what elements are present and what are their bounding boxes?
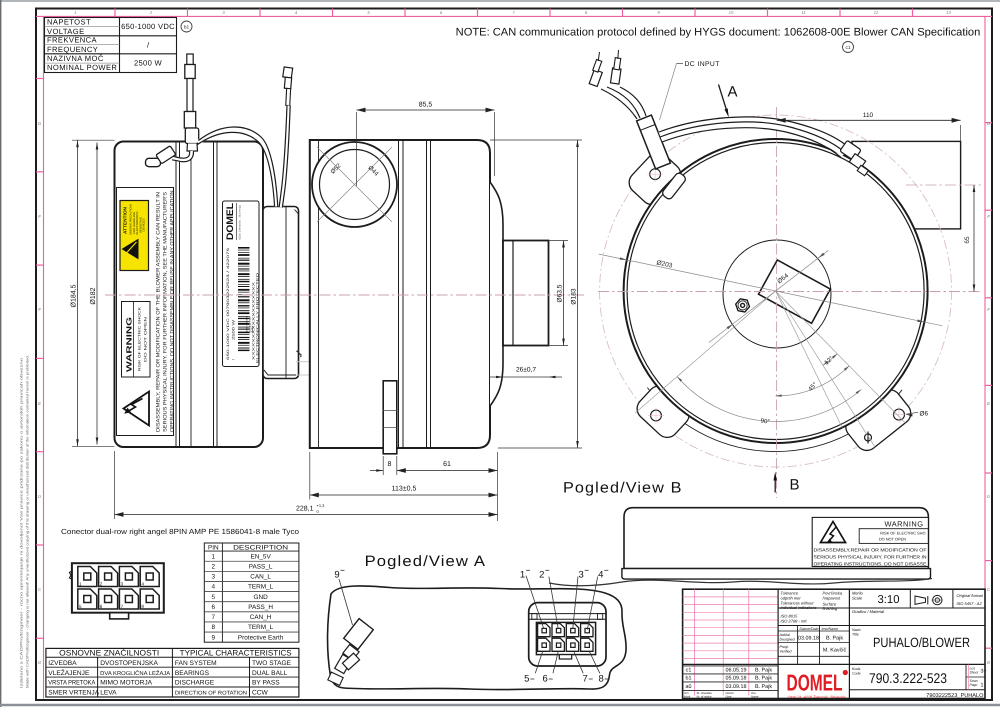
svg-text:Naziv: Naziv bbox=[852, 628, 861, 632]
svg-text:Ø6: Ø6 bbox=[920, 411, 929, 418]
svg-text:3:10: 3:10 bbox=[878, 594, 900, 606]
svg-text:b1: b1 bbox=[184, 24, 190, 30]
svg-text:Date: Date bbox=[726, 694, 732, 698]
svg-text:05.09.18: 05.09.18 bbox=[726, 676, 747, 682]
svg-text:Made with CAD/Pro/Engineer - c: Made with CAD/Pro/Engineer - changing is… bbox=[26, 355, 30, 688]
svg-text:DC INPUT: DC INPUT bbox=[685, 61, 720, 68]
svg-text:Otoki 21, 4228 Železniki, Slov: Otoki 21, 4228 Železniki, Slovenija bbox=[788, 695, 846, 699]
svg-text:Izdelano s CAD/Pro/Engineer -: Izdelano s CAD/Pro/Engineer - rocno spre… bbox=[20, 358, 24, 688]
svg-text:VLEŽAJENJE: VLEŽAJENJE bbox=[48, 669, 90, 677]
svg-text:1: 1 bbox=[520, 570, 525, 581]
svg-text:4: 4 bbox=[212, 584, 216, 591]
svg-text:DISCHARGE: DISCHARGE bbox=[175, 680, 215, 687]
svg-text:2: 2 bbox=[539, 570, 544, 581]
svg-text:650-1000 VDC 007903222523 /: 650-1000 VDC 007903222523 / 422076 bbox=[226, 248, 230, 360]
svg-text:26±0,7: 26±0,7 bbox=[516, 367, 536, 374]
svg-text:3: 3 bbox=[579, 570, 584, 581]
svg-text:65: 65 bbox=[964, 236, 971, 244]
svg-text:Original format: Original format bbox=[957, 593, 984, 598]
svg-text:Izdelal: Izdelal bbox=[779, 633, 790, 637]
svg-text:11: 11 bbox=[801, 10, 805, 15]
svg-text:MIMO MOTORJA: MIMO MOTORJA bbox=[100, 680, 152, 687]
svg-text:85,5: 85,5 bbox=[419, 102, 433, 109]
svg-text:/: / bbox=[232, 359, 236, 360]
svg-text:Ø183: Ø183 bbox=[571, 288, 578, 304]
svg-text:Pregl.: Pregl. bbox=[780, 645, 789, 649]
svg-text:IZVEDBA: IZVEDBA bbox=[48, 660, 77, 667]
svg-text:Koda: Koda bbox=[852, 667, 860, 671]
svg-text:ISO 2768 - mK: ISO 2768 - mK bbox=[781, 618, 808, 623]
svg-text:Ø182: Ø182 bbox=[89, 287, 97, 304]
svg-text:03.09.18: 03.09.18 bbox=[726, 684, 747, 690]
svg-text:hrapavost: hrapavost bbox=[823, 595, 841, 600]
svg-text:Name: Name bbox=[751, 694, 759, 698]
svg-text:E: E bbox=[987, 401, 990, 406]
svg-text:A: A bbox=[728, 84, 738, 101]
svg-text:VRSTA PRETOKA: VRSTA PRETOKA bbox=[48, 680, 96, 687]
svg-text:Mark: Mark bbox=[684, 694, 691, 698]
svg-text:6: 6 bbox=[212, 604, 216, 611]
svg-text:SERIOUS PHYSICAL INJURY. FOR F: SERIOUS PHYSICAL INJURY. FOR FURTHER INF… bbox=[163, 191, 169, 432]
svg-text:B. Pajk: B. Pajk bbox=[826, 635, 843, 641]
svg-text:PASS_H: PASS_H bbox=[248, 604, 273, 611]
svg-text:Title: Title bbox=[852, 632, 859, 636]
svg-text:M. Kavčič: M. Kavčič bbox=[823, 647, 847, 653]
svg-text:SERIOUS PHYSICAL INJURY. FOR F: SERIOUS PHYSICAL INJURY. FOR FURTHER IN bbox=[814, 555, 927, 560]
svg-text:113±0,5: 113±0,5 bbox=[392, 486, 417, 493]
svg-text:a0: a0 bbox=[686, 684, 692, 690]
svg-text:1: 1 bbox=[212, 553, 216, 560]
svg-text:1: 1 bbox=[79, 582, 82, 587]
svg-text:B: B bbox=[790, 477, 800, 494]
svg-text:Pogled/View A: Pogled/View A bbox=[365, 553, 487, 570]
svg-text:4: 4 bbox=[598, 570, 603, 581]
svg-text:7: 7 bbox=[583, 674, 588, 685]
svg-text:Ø184,5: Ø184,5 bbox=[70, 284, 78, 307]
svg-text:NOMINAL POWER: NOMINAL POWER bbox=[47, 63, 117, 72]
svg-text:CCW: CCW bbox=[252, 690, 269, 697]
svg-text:VOLTAGE: VOLTAGE bbox=[47, 27, 85, 36]
svg-text:ATTENTION: ATTENTION bbox=[123, 207, 128, 234]
svg-text:650-1000 VDC: 650-1000 VDC bbox=[121, 22, 175, 31]
svg-text:CAN_H: CAN_H bbox=[250, 614, 272, 621]
svg-text:7: 7 bbox=[121, 604, 124, 609]
svg-text:OPERATING INSTRUCTIONS. DO NOT: OPERATING INSTRUCTIONS. DO NOT DISASSEMB… bbox=[170, 189, 176, 432]
svg-text:DO NOT OPEN: DO NOT OPEN bbox=[879, 537, 906, 542]
svg-text:B. Pajk: B. Pajk bbox=[755, 684, 772, 690]
svg-text:FAN SYSTEM: FAN SYSTEM bbox=[175, 660, 217, 667]
svg-text:8: 8 bbox=[388, 461, 392, 468]
svg-text:Verified: Verified bbox=[780, 649, 793, 653]
svg-text:PUHALO/BLOWER: PUHALO/BLOWER bbox=[873, 635, 970, 650]
svg-text:E: E bbox=[38, 401, 41, 406]
svg-text:8: 8 bbox=[599, 674, 604, 685]
svg-text:5: 5 bbox=[79, 604, 82, 609]
svg-text:110: 110 bbox=[863, 112, 874, 119]
svg-text:WARNING: WARNING bbox=[885, 520, 924, 529]
svg-text:DESCRIPTION: DESCRIPTION bbox=[233, 545, 288, 552]
svg-text:DOMEL: DOMEL bbox=[787, 670, 843, 696]
svg-text:Pogled/View B: Pogled/View B bbox=[563, 480, 683, 497]
svg-text:Ime/Name: Ime/Name bbox=[822, 627, 839, 631]
svg-text:DEVICES: DEVICES bbox=[143, 218, 146, 231]
svg-text:3+: 3+ bbox=[981, 668, 987, 674]
svg-text:4226 Zelezniki . Slovenija: 4226 Zelezniki . Slovenija bbox=[239, 204, 242, 240]
svg-text:228,1: 228,1 bbox=[296, 506, 314, 513]
svg-text:GND: GND bbox=[253, 594, 268, 601]
svg-text:CAN_L: CAN_L bbox=[250, 574, 271, 581]
svg-text:c1: c1 bbox=[686, 668, 692, 674]
svg-text:Scale: Scale bbox=[852, 595, 863, 600]
svg-text:5: 5 bbox=[524, 674, 529, 685]
svg-text:4: 4 bbox=[141, 582, 144, 587]
svg-text:Designed: Designed bbox=[780, 637, 796, 641]
svg-text:6: 6 bbox=[100, 604, 103, 609]
svg-text:9: 9 bbox=[334, 570, 339, 581]
svg-text:ELECTRONICALLY PROTECTED: ELECTRONICALLY PROTECTED bbox=[256, 272, 260, 363]
svg-text:90°: 90° bbox=[760, 417, 771, 425]
svg-text:DISASSEMBLY,REPAIR OR MODIFICA: DISASSEMBLY,REPAIR OR MODIFICATION OF bbox=[814, 548, 927, 553]
svg-text:DIRECTION OF ROTATION: DIRECTION OF ROTATION bbox=[175, 691, 247, 697]
svg-text:8: 8 bbox=[141, 604, 144, 609]
svg-text:F: F bbox=[38, 214, 41, 219]
svg-text:B: B bbox=[38, 660, 41, 665]
svg-text:NAZIVNA MOČ: NAZIVNA MOČ bbox=[47, 54, 104, 63]
svg-text:7: 7 bbox=[212, 614, 216, 621]
svg-text:D: D bbox=[987, 494, 990, 499]
svg-text:TERM_L: TERM_L bbox=[248, 584, 274, 591]
svg-text:individual indications: individual indications bbox=[781, 605, 817, 610]
svg-text:TWO STAGE: TWO STAGE bbox=[252, 660, 292, 667]
svg-text:5: 5 bbox=[212, 594, 216, 601]
svg-text:+1,3: +1,3 bbox=[317, 503, 326, 508]
svg-text:9: 9 bbox=[212, 634, 216, 641]
svg-text:2500 W: 2500 W bbox=[134, 58, 163, 67]
svg-text:b1: b1 bbox=[686, 676, 692, 682]
svg-text:61: 61 bbox=[443, 461, 451, 468]
svg-text:DUAL BALL: DUAL BALL bbox=[252, 670, 288, 677]
svg-text:13: 13 bbox=[946, 10, 951, 15]
svg-text:DISASSEMBLY, REPAIR OR MODIFIC: DISASSEMBLY, REPAIR OR MODIFICATION OF T… bbox=[156, 192, 162, 432]
svg-text:F: F bbox=[38, 307, 41, 312]
svg-text:2: 2 bbox=[212, 563, 216, 570]
svg-text:RISK OF ELECTRIC SHO: RISK OF ELECTRIC SHO bbox=[880, 531, 925, 536]
svg-text:Ø63,5: Ø63,5 bbox=[557, 284, 564, 302]
svg-text:ISO 5457 - A2: ISO 5457 - A2 bbox=[957, 601, 983, 606]
svg-text:DO NOT OPEN: DO NOT OPEN bbox=[144, 316, 148, 362]
svg-text:PASS_L: PASS_L bbox=[249, 563, 273, 570]
svg-text:3: 3 bbox=[121, 582, 124, 587]
svg-text:OSNOVNE ZNAČILNOSTI: OSNOVNE ZNAČILNOSTI bbox=[59, 648, 159, 657]
svg-text:8: 8 bbox=[212, 624, 216, 631]
svg-text:1: 1 bbox=[981, 682, 984, 688]
svg-text:Gradivo / Material: Gradivo / Material bbox=[852, 609, 884, 614]
svg-text:WARNING: WARNING bbox=[125, 317, 134, 372]
svg-text:03.09.18: 03.09.18 bbox=[798, 635, 819, 641]
svg-text:Protective Earth: Protective Earth bbox=[238, 634, 284, 641]
svg-text:TYPICAL CHARACTERISTICS: TYPICAL CHARACTERISTICS bbox=[180, 648, 292, 657]
svg-text:FREKVENCA: FREKVENCA bbox=[47, 36, 98, 45]
svg-text:Sheet: Sheet bbox=[970, 670, 980, 674]
svg-text:DVOSTOPENJSKA: DVOSTOPENJSKA bbox=[100, 660, 158, 667]
svg-text:Conector dual-row right angel: Conector dual-row right angel 8PIN AMP P… bbox=[61, 527, 299, 536]
svg-text:12: 12 bbox=[874, 10, 879, 15]
svg-text:EN_5V: EN_5V bbox=[250, 553, 271, 560]
svg-text:FREQUENCY: FREQUENCY bbox=[47, 45, 98, 54]
svg-text:BEARINGS: BEARINGS bbox=[175, 670, 210, 677]
svg-text:NOTE: CAN communication protoc: NOTE: CAN communication protocol defined… bbox=[456, 26, 981, 38]
svg-text:06.05.19: 06.05.19 bbox=[726, 668, 747, 674]
svg-text:D: D bbox=[38, 494, 41, 499]
svg-text:790.3.222-523: 790.3.222-523 bbox=[869, 670, 947, 686]
svg-text:Datum/Date: Datum/Date bbox=[800, 627, 819, 631]
svg-text:Code: Code bbox=[852, 671, 861, 675]
svg-text:TERM_L: TERM_L bbox=[248, 624, 274, 631]
svg-text:2500 W: 2500 W bbox=[232, 319, 236, 340]
svg-text:DOMEL: DOMEL bbox=[225, 203, 236, 240]
svg-text:B. Pajk: B. Pajk bbox=[755, 668, 772, 674]
svg-text:Page: Page bbox=[970, 683, 978, 687]
svg-text:LEVA: LEVA bbox=[100, 690, 117, 697]
svg-text:SMER VRTENJA: SMER VRTENJA bbox=[48, 690, 99, 697]
svg-text:PIN: PIN bbox=[208, 545, 219, 552]
svg-text:DVA KROGLIČNA LEŽAJA: DVA KROGLIČNA LEŽAJA bbox=[100, 670, 170, 677]
svg-text:2: 2 bbox=[100, 582, 103, 587]
svg-text:Nr. of notice: Nr. of notice bbox=[697, 694, 712, 698]
svg-text:BY PASS: BY PASS bbox=[252, 680, 280, 687]
svg-text:1: 1 bbox=[74, 10, 76, 15]
svg-text:6: 6 bbox=[543, 674, 548, 685]
svg-text:F: F bbox=[987, 214, 990, 219]
svg-text:B. Pajk: B. Pajk bbox=[755, 676, 772, 682]
svg-text:OPERATING INSTRUCTIONS. DO NOT: OPERATING INSTRUCTIONS. DO NOT DISASSE bbox=[814, 562, 927, 567]
svg-text:F: F bbox=[987, 307, 990, 312]
svg-text:c1: c1 bbox=[845, 45, 850, 51]
svg-text:3: 3 bbox=[212, 574, 216, 581]
svg-text:NAPETOST: NAPETOST bbox=[47, 18, 91, 27]
svg-text:finishing: finishing bbox=[823, 606, 838, 611]
svg-text:B: B bbox=[987, 660, 990, 665]
svg-text:date: date bbox=[251, 325, 254, 333]
svg-text:RISK OF ELECTRIC SHOCK: RISK OF ELECTRIC SHOCK bbox=[138, 306, 142, 371]
svg-text:7903222523_PUHALO: 7903222523_PUHALO bbox=[926, 693, 984, 699]
svg-text:10: 10 bbox=[729, 10, 734, 15]
